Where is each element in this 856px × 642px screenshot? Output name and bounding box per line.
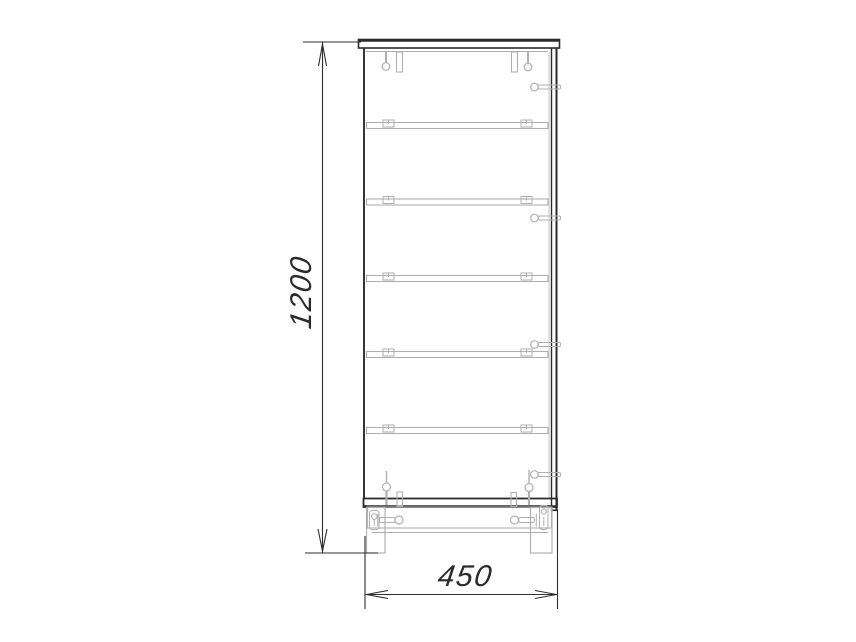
cam-lock-eye-icon <box>372 514 378 520</box>
dimension-width: 450 <box>365 511 558 609</box>
screw-shaft-icon <box>380 518 396 523</box>
screw-head-icon <box>395 516 403 524</box>
dowel-icon <box>511 493 517 507</box>
drawing-canvas: 1200 450 <box>0 0 856 642</box>
plinth <box>367 506 553 554</box>
screw-head-icon <box>511 516 519 524</box>
shelves <box>367 120 549 434</box>
height-dimension-label: 1200 <box>285 253 318 330</box>
screw-head-icon <box>525 484 533 492</box>
right-foot <box>531 508 553 554</box>
screw-head-icon <box>524 63 532 71</box>
dowel-icon <box>397 52 403 72</box>
dowel-icon <box>512 52 518 72</box>
top-fittings <box>382 52 532 72</box>
shelf <box>367 273 549 282</box>
shelf <box>367 197 549 206</box>
screw-shaft-icon <box>519 518 535 523</box>
bottom-fittings <box>383 470 534 507</box>
screw-head-icon <box>383 483 391 491</box>
shelf <box>367 120 549 129</box>
cabinet-drawing: 1200 450 <box>0 0 856 642</box>
screw-head-icon <box>382 63 390 71</box>
cam-lock-eye-icon <box>541 509 546 514</box>
shelf <box>367 425 549 434</box>
shelf <box>367 349 549 358</box>
width-dimension-label: 450 <box>436 560 495 593</box>
